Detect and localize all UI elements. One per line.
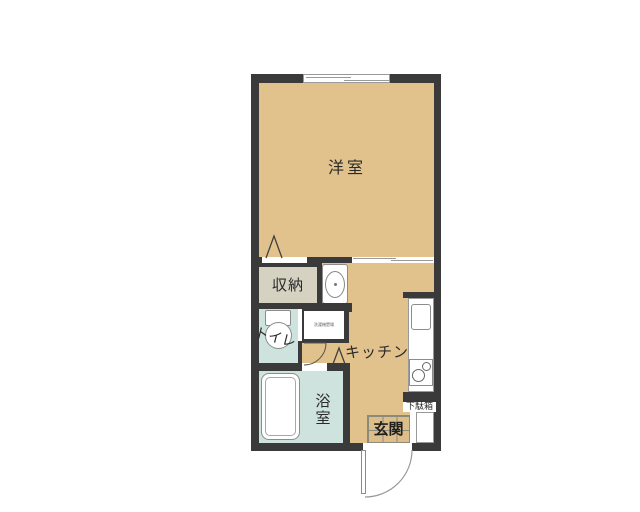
stove-icon	[409, 359, 433, 386]
kitchen-label: キッチン	[345, 344, 425, 360]
bathroom-door-gap	[302, 363, 327, 371]
washing-machine-icon	[322, 264, 348, 304]
entrance-door-swing-icon	[365, 450, 412, 497]
entrance-tiles: 玄関	[367, 415, 410, 443]
counter-bottom-wall	[403, 392, 434, 402]
toilet-side-wall	[298, 341, 302, 363]
sliding-door-icon	[352, 257, 434, 263]
entrance-door-panel	[361, 450, 366, 494]
bathtub-icon	[261, 373, 300, 440]
floor-plan: 収納 洗濯機置場 トイレ 浴室 下駄箱 玄関	[0, 0, 640, 512]
bathroom-label: 浴室	[312, 387, 332, 433]
closet-label: 収納	[272, 278, 304, 293]
kitchen-sink-icon	[411, 304, 431, 330]
washer-space-label: 洗濯機置場	[314, 323, 334, 327]
shoe-cabinet	[416, 412, 434, 443]
entrance-doorway	[363, 443, 412, 451]
western-room-label: 洋室	[306, 159, 388, 177]
entrance-label: 玄関	[373, 422, 403, 437]
window-icon	[303, 74, 390, 83]
bathroom-right-wall	[343, 363, 350, 443]
shoe-cabinet-label-area: 下駄箱	[403, 402, 436, 412]
washer-space-box: 洗濯機置場	[304, 311, 344, 339]
closet-room: 収納	[259, 267, 317, 303]
